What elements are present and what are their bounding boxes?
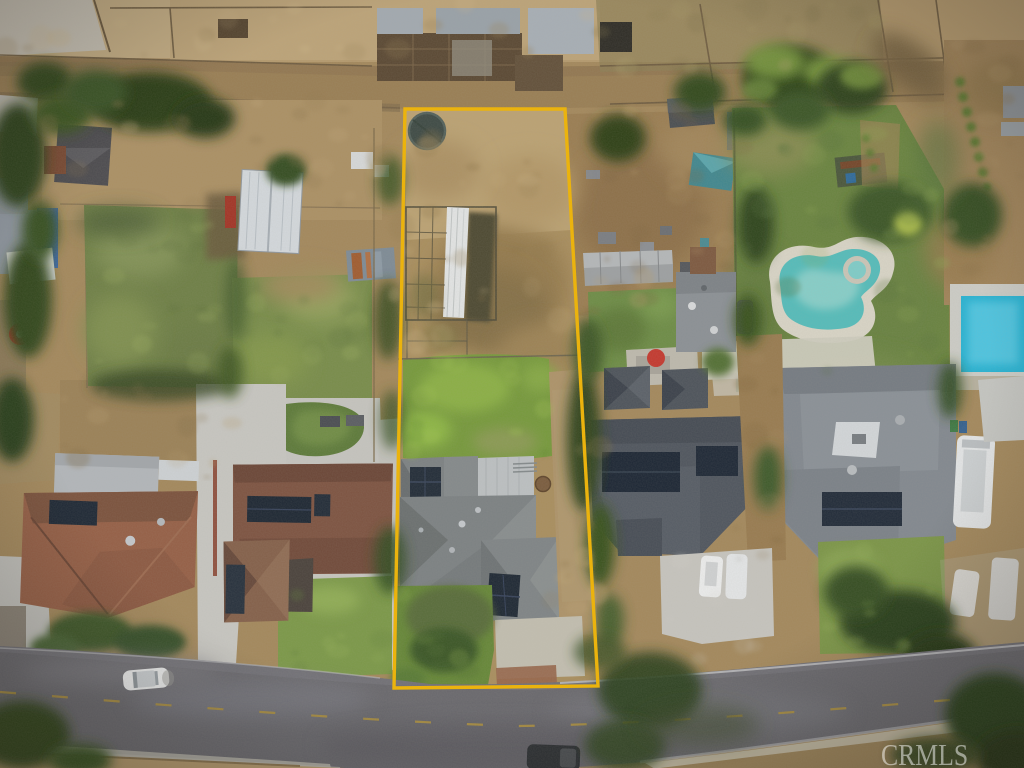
svg-text:CRMLS: CRMLS (881, 739, 968, 768)
